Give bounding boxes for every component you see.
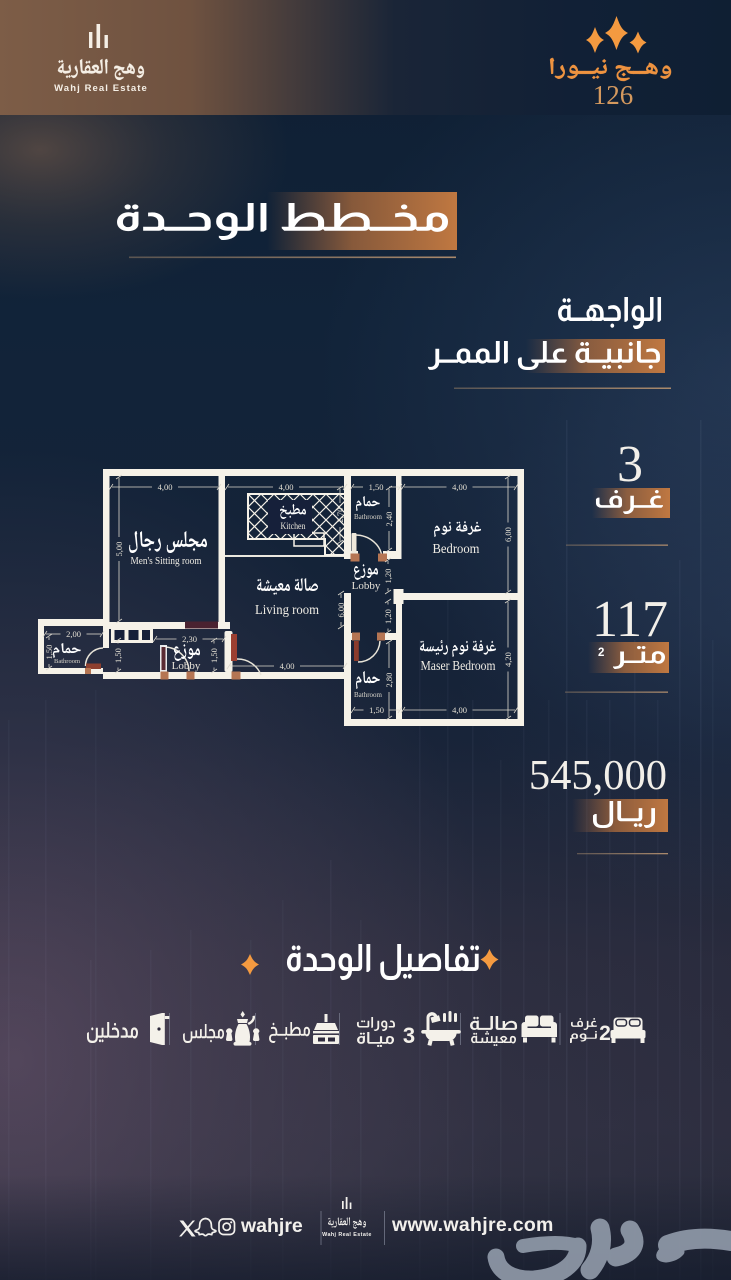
- svg-text:1,50: 1,50: [44, 645, 54, 660]
- svg-text:Maser Bedroom: Maser Bedroom: [421, 658, 496, 673]
- svg-text:Bathroom: Bathroom: [54, 658, 80, 665]
- svg-text:2,70: 2,70: [335, 508, 345, 523]
- svg-text:1,50: 1,50: [369, 482, 384, 492]
- svg-text:4,00: 4,00: [452, 482, 467, 492]
- svg-text:2: 2: [599, 1022, 611, 1045]
- svg-text:4,00: 4,00: [280, 661, 295, 671]
- svg-text:Wahj Real Estate: Wahj Real Estate: [54, 83, 148, 94]
- svg-text:wahjre: wahjre: [240, 1215, 303, 1237]
- svg-text:Bedroom: Bedroom: [433, 541, 480, 556]
- svg-text:1,20: 1,20: [383, 569, 393, 584]
- svg-text:4,00: 4,00: [158, 482, 173, 492]
- svg-text:1,50: 1,50: [369, 705, 384, 715]
- svg-text:2,30: 2,30: [182, 634, 197, 644]
- svg-text:6,00: 6,00: [336, 603, 346, 618]
- svg-text:6,00: 6,00: [503, 527, 513, 542]
- svg-text:1,50: 1,50: [113, 648, 123, 663]
- svg-text:Lobby: Lobby: [352, 580, 381, 592]
- svg-text:Lobby: Lobby: [172, 660, 201, 672]
- svg-text:Bathroom: Bathroom: [354, 513, 383, 521]
- svg-text:4,20: 4,20: [503, 652, 513, 667]
- svg-text:545,000: 545,000: [529, 752, 667, 799]
- svg-text:Wahj Real Estate: Wahj Real Estate: [322, 1232, 372, 1238]
- svg-text:1,20: 1,20: [383, 609, 393, 624]
- svg-text:Living room: Living room: [255, 602, 319, 617]
- svg-text:Kitchen: Kitchen: [281, 522, 306, 532]
- svg-text:2,40: 2,40: [384, 512, 394, 527]
- svg-text:3: 3: [617, 436, 643, 493]
- svg-text:117: 117: [592, 591, 668, 648]
- svg-text:2: 2: [598, 647, 604, 659]
- svg-text:126: 126: [593, 80, 634, 110]
- svg-text:4,00: 4,00: [452, 705, 467, 715]
- svg-text:3: 3: [403, 1023, 415, 1048]
- svg-text:Men's Sitting room: Men's Sitting room: [131, 555, 202, 567]
- svg-text:1,50: 1,50: [209, 648, 219, 663]
- svg-text:www.wahjre.com: www.wahjre.com: [391, 1214, 554, 1236]
- svg-text:5,00: 5,00: [114, 542, 124, 557]
- svg-text:Bathroom: Bathroom: [354, 691, 383, 699]
- svg-text:2,00: 2,00: [66, 629, 81, 639]
- svg-text:2,80: 2,80: [384, 673, 394, 688]
- svg-text:4,00: 4,00: [279, 482, 294, 492]
